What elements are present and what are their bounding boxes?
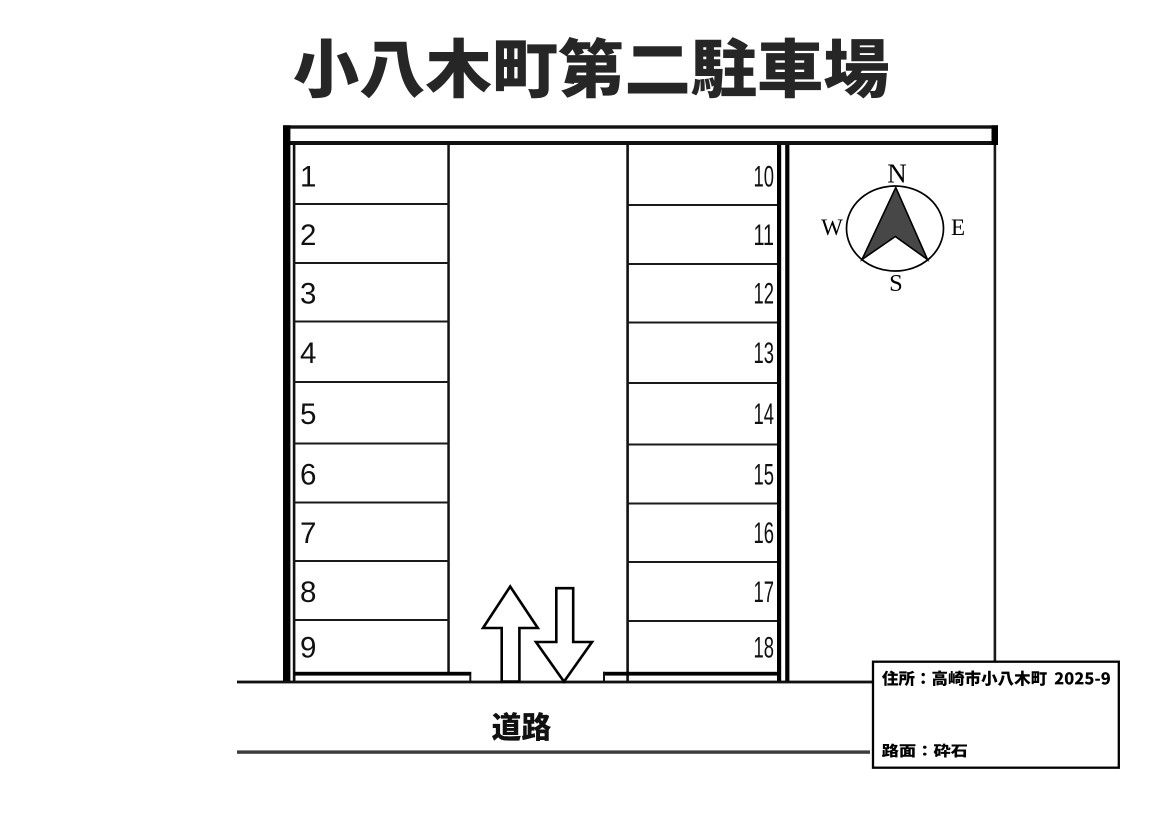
svg-text:S: S <box>889 270 903 297</box>
svg-text:E: E <box>951 215 965 240</box>
svg-text:18: 18 <box>754 632 775 665</box>
svg-text:16: 16 <box>754 517 775 550</box>
svg-text:17: 17 <box>754 576 775 609</box>
svg-text:14: 14 <box>754 398 775 431</box>
svg-text:5: 5 <box>300 398 316 431</box>
svg-text:10: 10 <box>754 160 775 193</box>
svg-text:11: 11 <box>754 219 775 252</box>
svg-text:8: 8 <box>300 576 316 609</box>
svg-text:6: 6 <box>300 458 316 491</box>
svg-text:12: 12 <box>754 278 775 311</box>
svg-text:15: 15 <box>754 458 775 491</box>
svg-text:13: 13 <box>754 337 775 370</box>
svg-text:4: 4 <box>300 337 316 370</box>
svg-text:3: 3 <box>300 278 316 311</box>
svg-text:W: W <box>821 215 843 240</box>
svg-text:2: 2 <box>300 219 316 252</box>
svg-text:7: 7 <box>300 517 316 550</box>
svg-text:1: 1 <box>300 160 316 193</box>
svg-text:9: 9 <box>300 632 316 665</box>
svg-text:N: N <box>887 159 907 189</box>
